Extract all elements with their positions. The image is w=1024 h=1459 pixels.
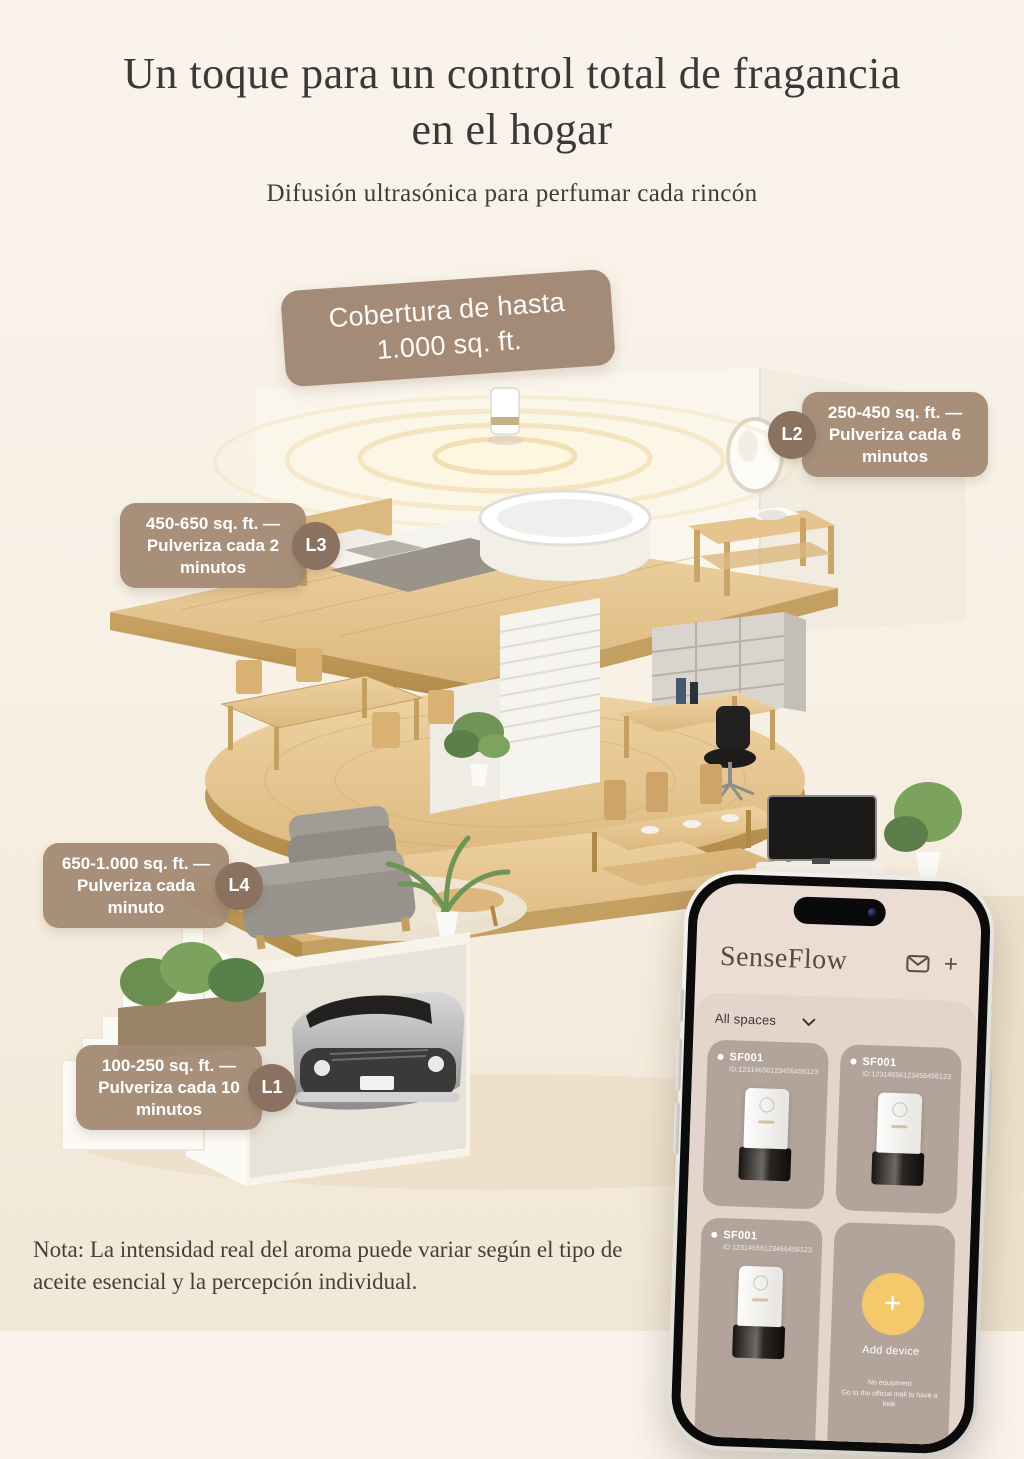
callout-l4: 650-1.000 sq. ft. — Pulveriza cada minut… xyxy=(43,843,263,928)
devices-panel: All spaces SF001 ID:12314656123456456123… xyxy=(679,992,978,1446)
add-device-plus-icon[interactable]: + xyxy=(860,1272,924,1336)
status-dot xyxy=(717,1054,723,1060)
callout-l2-line1: 250-450 sq. ft. — xyxy=(816,402,974,424)
callout-l1-bubble: 100-250 sq. ft. — Pulveriza cada 10 minu… xyxy=(76,1045,262,1130)
callout-l1-line1: 100-250 sq. ft. — xyxy=(90,1055,248,1077)
callout-l3-dot: L3 xyxy=(292,522,340,570)
phone-screen: SenseFlow + All spaces xyxy=(679,882,982,1446)
callout-l4-line2: Pulveriza cada xyxy=(57,875,215,897)
footnote: Nota: La intensidad real del aroma puede… xyxy=(33,1234,693,1298)
status-dot xyxy=(711,1232,717,1238)
callout-l2-line3: minutos xyxy=(816,446,974,468)
add-device-hint-line2: Go to the official mall to have a look xyxy=(838,1388,940,1413)
footnote-line1: Nota: La intensidad real del aroma puede… xyxy=(33,1234,693,1266)
diffuser-thumbnail xyxy=(732,1266,787,1360)
callout-l2: L2 250-450 sq. ft. — Pulveriza cada 6 mi… xyxy=(768,392,988,477)
callout-l4-line3: minuto xyxy=(57,897,215,919)
title-line-1: Un toque para un control total de fragan… xyxy=(0,46,1024,102)
footnote-line2: aceite esencial y la percepción individu… xyxy=(33,1266,693,1298)
diffuser-device xyxy=(487,388,523,445)
bathtub xyxy=(480,491,650,581)
page-subtitle: Difusión ultrasónica para perfumar cada … xyxy=(0,180,1024,208)
device-name: SF001 xyxy=(729,1051,763,1064)
vintage-car xyxy=(292,992,464,1110)
callout-l2-line2: Pulveriza cada 6 xyxy=(816,424,974,446)
device-id: ID:12314656123456456123yyy xyxy=(729,1066,818,1076)
phone-volume-down-button xyxy=(673,1102,680,1154)
device-card[interactable]: SF001 ID:12314656123456456123yyy xyxy=(835,1044,962,1214)
device-id: ID:12314656123456456123yyy xyxy=(723,1244,812,1254)
device-name: SF001 xyxy=(862,1056,896,1069)
plant-basement-right xyxy=(884,782,962,878)
diffuser-thumbnail xyxy=(738,1088,793,1182)
phone-bezel: SenseFlow + All spaces xyxy=(670,873,992,1455)
callout-l4-line1: 650-1.000 sq. ft. — xyxy=(57,853,215,875)
space-filter-label: All spaces xyxy=(715,1011,777,1028)
app-title: SenseFlow xyxy=(719,941,906,979)
callout-l3-bubble: 450-650 sq. ft. — Pulveriza cada 2 minut… xyxy=(120,503,306,588)
add-device-hint: No equipment Go to the official mall to … xyxy=(838,1377,940,1412)
device-name: SF001 xyxy=(723,1229,757,1242)
dynamic-island xyxy=(793,896,886,926)
camera-dot xyxy=(868,908,877,917)
callout-l4-bubble: 650-1.000 sq. ft. — Pulveriza cada minut… xyxy=(43,843,229,928)
callout-l1-dot: L1 xyxy=(248,1064,296,1112)
callout-l3: 450-650 sq. ft. — Pulveriza cada 2 minut… xyxy=(120,503,340,588)
space-filter[interactable]: All spaces xyxy=(709,1008,963,1034)
callout-l3-line2: Pulveriza cada 2 xyxy=(134,535,292,557)
phone-volume-up-button xyxy=(675,1038,682,1090)
add-device-label: Add device xyxy=(862,1344,920,1358)
status-dot xyxy=(850,1058,856,1064)
device-card-grid: SF001 ID:12314656123456456123yyy SF001 I… xyxy=(694,1039,962,1445)
add-icon[interactable]: + xyxy=(943,953,958,977)
callout-l4-dot: L4 xyxy=(215,862,263,910)
device-id: ID:12314656123456456123yyy xyxy=(862,1071,951,1081)
chevron-down-icon xyxy=(802,1017,816,1025)
page-title: Un toque para un control total de fragan… xyxy=(0,46,1024,159)
device-card[interactable]: SF001 ID:12314656123456456123yyy xyxy=(702,1039,829,1209)
callout-l3-line3: minutos xyxy=(134,557,292,579)
mail-icon[interactable] xyxy=(906,954,931,973)
diffuser-thumbnail xyxy=(871,1092,926,1186)
callout-l1: 100-250 sq. ft. — Pulveriza cada 10 minu… xyxy=(76,1045,296,1130)
callout-l3-line1: 450-650 sq. ft. — xyxy=(134,513,292,535)
add-device-card[interactable]: + Add device No equipment Go to the offi… xyxy=(827,1222,956,1446)
callout-l2-bubble: 250-450 sq. ft. — Pulveriza cada 6 minut… xyxy=(802,392,988,477)
callout-l1-line2: Pulveriza cada 10 xyxy=(90,1077,248,1099)
phone-mockup: SenseFlow + All spaces xyxy=(666,869,996,1459)
phone-mute-switch xyxy=(678,988,684,1022)
callout-l2-dot: L2 xyxy=(768,411,816,459)
app-header: SenseFlow + xyxy=(719,941,958,981)
device-card[interactable]: SF001 ID:12314656123456456123yyy xyxy=(694,1217,823,1445)
bushes xyxy=(118,942,266,1062)
callout-l1-line3: minutos xyxy=(90,1099,248,1121)
title-line-2: en el hogar xyxy=(0,102,1024,158)
